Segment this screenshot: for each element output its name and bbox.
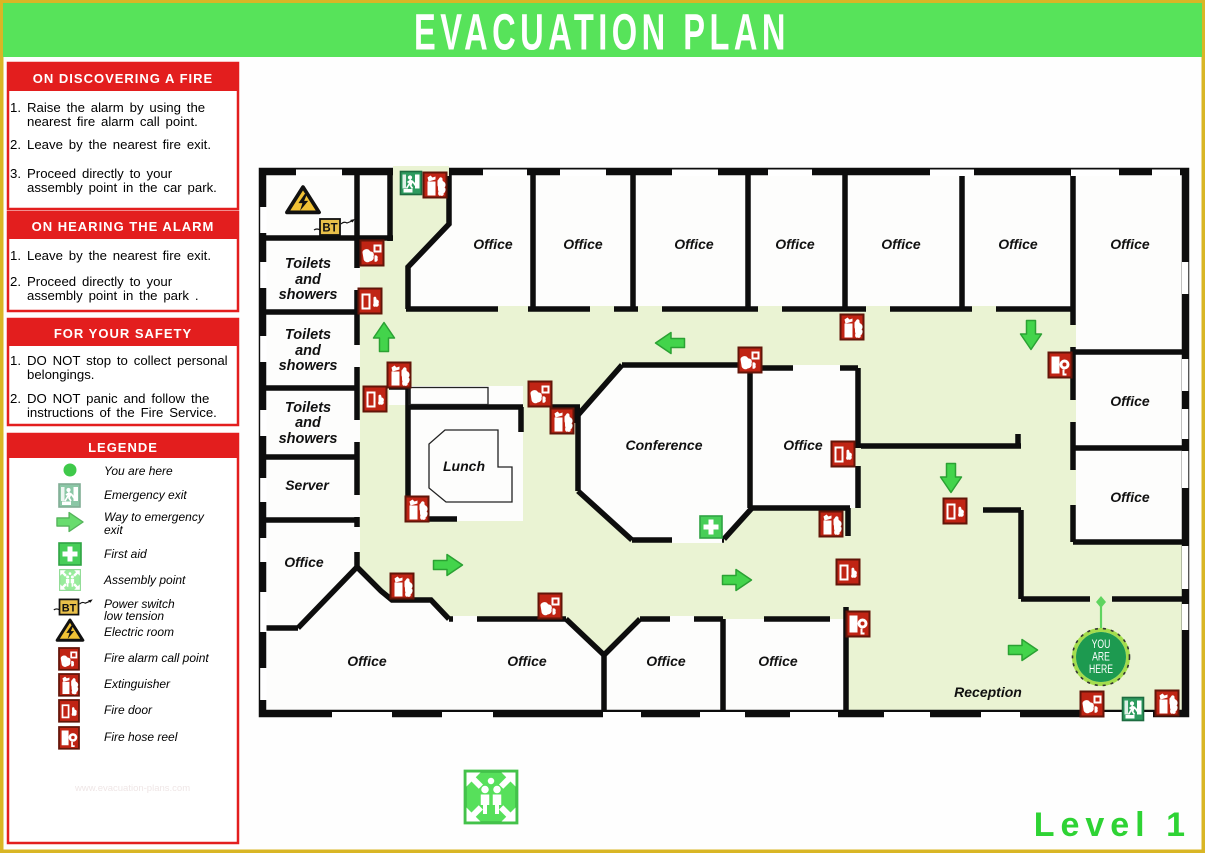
svg-text:Way to emergency: Way to emergency [104, 510, 205, 524]
svg-text:Office: Office [783, 437, 823, 453]
svg-text:First aid: First aid [104, 547, 147, 561]
svg-text:assembly point in the car park: assembly point in the car park. [27, 180, 217, 195]
svg-text:1.: 1. [10, 353, 21, 368]
svg-text:assembly point in the park .: assembly point in the park . [27, 288, 199, 303]
svg-text:3.: 3. [10, 166, 21, 181]
svg-text:You are here: You are here [104, 464, 173, 478]
svg-text:Office: Office [563, 236, 603, 252]
svg-text:showers: showers [279, 358, 338, 374]
svg-text:Extinguisher: Extinguisher [104, 677, 171, 691]
svg-text:Leave by the nearest fire exit: Leave by the nearest fire exit. [27, 248, 211, 263]
svg-text:belongings.: belongings. [27, 367, 94, 382]
svg-text:DO NOT stop to collect persona: DO NOT stop to collect personal [27, 353, 228, 368]
svg-text:Office: Office [1110, 393, 1150, 409]
svg-text:DO NOT panic and follow the: DO NOT panic and follow the [27, 391, 209, 406]
svg-text:Office: Office [998, 236, 1038, 252]
svg-text:2.: 2. [10, 274, 21, 289]
svg-text:www.evacuation-plans.com: www.evacuation-plans.com [74, 783, 190, 794]
svg-text:Office: Office [347, 653, 387, 669]
svg-text:Office: Office [507, 653, 547, 669]
svg-text:Assembly point: Assembly point [103, 573, 186, 587]
svg-text:low tension: low tension [104, 609, 164, 623]
svg-text:Proceed directly to your: Proceed directly to your [27, 274, 173, 289]
svg-text:1.: 1. [10, 100, 21, 115]
svg-text:showers: showers [279, 287, 338, 303]
svg-text:Office: Office [284, 554, 324, 570]
svg-text:Fire door: Fire door [104, 703, 153, 717]
svg-text:Leave by the nearest fire exit: Leave by the nearest fire exit. [27, 137, 211, 152]
svg-text:Office: Office [1110, 489, 1150, 505]
svg-text:Proceed directly to your: Proceed directly to your [27, 166, 173, 181]
svg-text:Office: Office [646, 653, 686, 669]
svg-text:showers: showers [279, 431, 338, 447]
svg-text:ON HEARING THE ALARM: ON HEARING THE ALARM [32, 219, 215, 234]
svg-text:exit: exit [104, 523, 123, 537]
svg-text:and: and [295, 415, 322, 431]
svg-text:Electric room: Electric room [104, 625, 174, 639]
svg-text:FOR YOUR SAFETY: FOR YOUR SAFETY [54, 326, 192, 341]
svg-text:1.: 1. [10, 248, 21, 263]
svg-text:2.: 2. [10, 391, 21, 406]
svg-text:Conference: Conference [625, 437, 702, 453]
svg-text:Lunch: Lunch [443, 458, 485, 474]
svg-text:Office: Office [775, 236, 815, 252]
svg-text:Raise the alarm by using the: Raise the alarm by using the [27, 100, 205, 115]
svg-text:nearest fire alarm call point.: nearest fire alarm call point. [27, 114, 198, 129]
svg-text:Toilets: Toilets [285, 256, 331, 272]
svg-text:Toilets: Toilets [285, 400, 331, 416]
svg-text:ARE: ARE [1092, 651, 1110, 664]
svg-text:EVACUATION PLAN: EVACUATION PLAN [414, 4, 790, 61]
svg-text:Toilets: Toilets [285, 327, 331, 343]
svg-text:Server: Server [285, 477, 330, 493]
svg-text:Office: Office [1110, 236, 1150, 252]
svg-text:YOU: YOU [1092, 639, 1111, 652]
svg-text:HERE: HERE [1089, 664, 1113, 677]
svg-text:and: and [295, 343, 322, 359]
svg-text:Fire hose reel: Fire hose reel [104, 730, 178, 744]
svg-text:LEGENDE: LEGENDE [88, 440, 158, 455]
svg-text:Office: Office [473, 236, 513, 252]
svg-text:instructions of the Fire Servi: instructions of the Fire Service. [27, 405, 217, 420]
svg-text:Office: Office [674, 236, 714, 252]
svg-text:Emergency exit: Emergency exit [104, 488, 187, 502]
svg-text:Office: Office [758, 653, 798, 669]
svg-text:2.: 2. [10, 137, 21, 152]
svg-text:Level 1: Level 1 [1034, 806, 1191, 844]
svg-text:Reception: Reception [954, 684, 1022, 700]
svg-text:Fire alarm call point: Fire alarm call point [104, 651, 209, 665]
svg-text:Office: Office [881, 236, 921, 252]
svg-text:ON DISCOVERING A FIRE: ON DISCOVERING A FIRE [33, 71, 213, 86]
svg-text:and: and [295, 272, 322, 288]
